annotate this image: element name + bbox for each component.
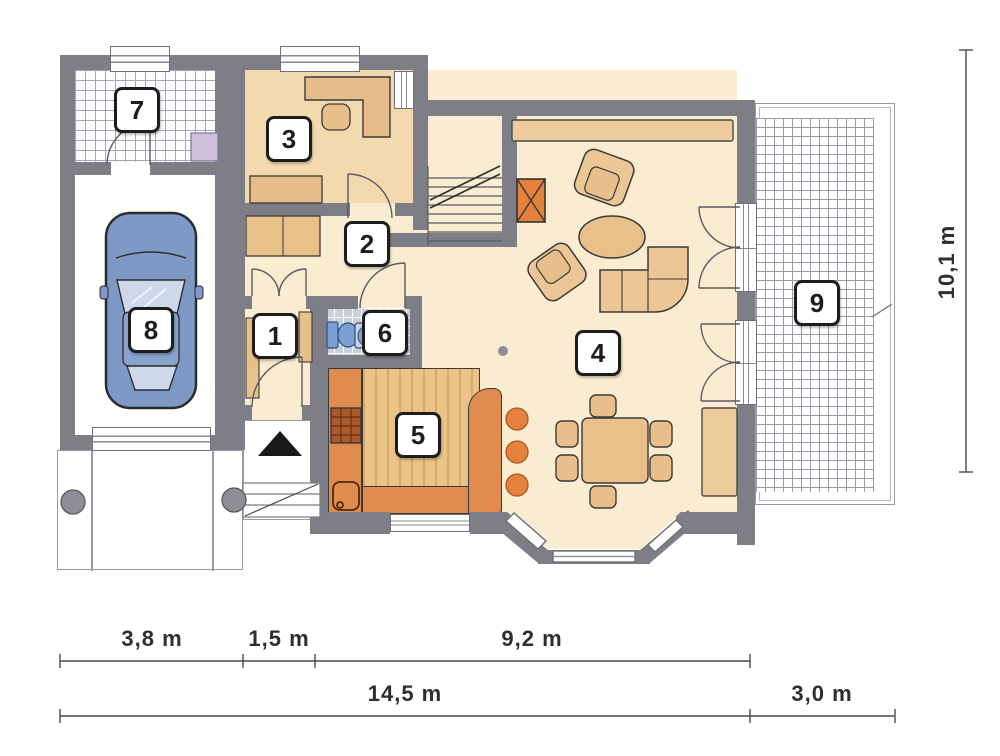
terrace-door-split-2	[736, 363, 756, 365]
wall-garage-bottom-left	[60, 435, 92, 450]
wall-vestibule-bottom-a	[228, 405, 252, 420]
wall-study-hall-b	[395, 203, 428, 216]
floor-plan-canvas: 1 2 3 4 5 6 7 8 9 3,8 m 1,5 m 9,2 m 14,5…	[0, 0, 1000, 756]
terrace-door-opening-1	[735, 203, 757, 292]
wall-vestibule-kitchen	[310, 296, 328, 512]
room-label-8-text: 8	[144, 315, 158, 346]
room-label-4-text: 4	[591, 338, 605, 369]
room-label-5-text: 5	[411, 420, 425, 451]
dim-total-width: 14,5 m	[368, 681, 443, 707]
study-window	[280, 46, 360, 72]
room-label-2: 2	[344, 221, 390, 267]
terrace-door-split-1	[736, 248, 756, 250]
dim-total-depth: 10,1 m	[934, 225, 960, 300]
wall-garage-house-divider	[215, 55, 245, 435]
wall-right-living-b	[737, 290, 755, 322]
room-label-8: 8	[128, 307, 174, 353]
room-label-3: 3	[266, 116, 312, 162]
room-label-7-text: 7	[130, 95, 144, 126]
dim-terrace-width: 3,0 m	[791, 681, 852, 707]
room-label-4: 4	[575, 330, 621, 376]
room-label-5: 5	[395, 412, 441, 458]
kitchen-bar-counter	[468, 388, 502, 514]
wall-kitchen-bottom-b	[470, 512, 512, 534]
room-label-9-text: 9	[810, 288, 824, 319]
wall-wc-right	[410, 296, 422, 362]
dim-segment-garage: 3,8 m	[121, 626, 182, 652]
driveway-lane-line-left	[91, 451, 93, 571]
wall-garage-bottom-right	[211, 435, 245, 450]
study-side-window	[394, 71, 414, 109]
room-label-2-text: 2	[360, 229, 374, 260]
room-label-7: 7	[114, 87, 160, 133]
wall-stairs-bottom	[390, 233, 502, 247]
dim-segment-house: 9,2 m	[501, 626, 562, 652]
bay-window	[489, 510, 699, 564]
wall-vestibule-bottom-b	[302, 405, 328, 420]
wall-hall-vestibule-a	[228, 296, 252, 309]
room-label-1: 1	[252, 313, 298, 359]
kitchen-counter-bottom	[362, 486, 474, 514]
driveway-lane-line-right	[212, 451, 214, 571]
wall-bottom-right	[676, 512, 745, 534]
wall-right-living-a	[737, 116, 755, 205]
room-label-9: 9	[794, 280, 840, 326]
garage-floor	[75, 175, 215, 435]
wall-study-hall-a	[245, 203, 350, 216]
wall-top-living	[413, 100, 755, 116]
terrace-door-opening-2	[735, 320, 757, 405]
room-label-6-text: 6	[378, 318, 392, 349]
wall-garage-utility-a	[75, 162, 111, 175]
room-label-3-text: 3	[282, 124, 296, 155]
wall-kitchen-bottom-a	[310, 512, 390, 534]
wall-stairs-right	[502, 116, 517, 247]
dim-segment-entry: 1,5 m	[248, 626, 309, 652]
utility-window	[110, 46, 170, 72]
kitchen-window	[390, 514, 470, 532]
wall-left	[60, 55, 75, 450]
wall-wc-kitchen	[318, 355, 422, 368]
kitchen-counter-left	[328, 368, 362, 515]
room-label-1-text: 1	[268, 321, 282, 352]
garage-door	[92, 427, 211, 451]
driveway	[57, 450, 243, 570]
room-label-6: 6	[362, 310, 408, 356]
